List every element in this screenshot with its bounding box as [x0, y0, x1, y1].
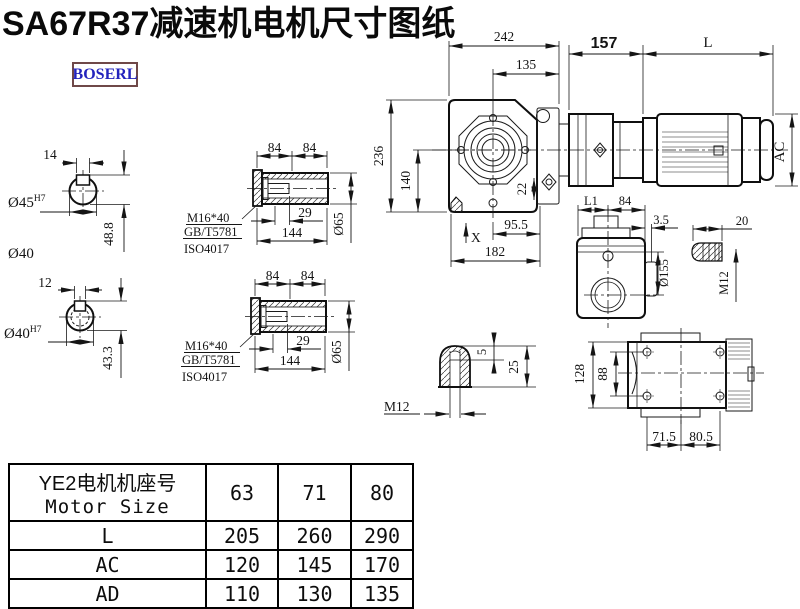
dim-text-29: 29 — [296, 333, 310, 348]
motor-flange-top-view — [726, 339, 754, 411]
table-cell: 110 — [206, 579, 278, 608]
dim-text-5: 5 — [475, 349, 489, 355]
dim-keyway-height-bottom: 43.3 — [86, 278, 127, 378]
dim-135: 135 — [493, 57, 559, 112]
gearbox-face-details — [451, 110, 556, 219]
dim-text-88: 88 — [595, 367, 610, 381]
dim-text-dia155: Ø155 — [657, 259, 671, 287]
dim-text-3-5: 3.5 — [653, 213, 669, 227]
dim-text-84a: 84 — [268, 140, 282, 155]
oil-plug — [537, 110, 550, 123]
solid-shaft-section-bottom: 12 Ø40H7 43.3 — [4, 275, 127, 378]
table-header-en: Motor Size — [11, 496, 204, 518]
dim-text-bore45: Ø45H7 — [8, 194, 46, 211]
solid-shaft-section-top: 14 Ø45H7 48.8 Ø40 — [8, 147, 130, 262]
table-cell: 145 — [278, 550, 351, 579]
dim-22: 22 — [515, 178, 534, 200]
dim-text-43-3: 43.3 — [100, 346, 115, 370]
dim-L1-84: L1 84 — [578, 194, 645, 260]
dim-text-135: 135 — [516, 57, 537, 72]
table-size-71: 71 — [278, 464, 351, 521]
dim-L: L — [643, 35, 773, 116]
main-assembly-view: 242 135 157 L 2 — [371, 29, 798, 267]
table-row-label-AD: AD — [9, 579, 206, 608]
table-cell: 130 — [278, 579, 351, 608]
table-row-label-AC: AC — [9, 550, 206, 579]
drawing-sheet: SA67R37减速机电机尺寸图纸 BOSERL — [0, 0, 800, 609]
table-header-cn: YE2电机机座号 — [11, 467, 204, 496]
dim-keyway-width-top: 14 — [43, 147, 104, 173]
dim-text-14: 14 — [43, 147, 57, 162]
table-cell: 135 — [351, 579, 413, 608]
dim-text-236: 236 — [371, 146, 386, 167]
dim-text-x: X — [471, 230, 481, 245]
dim-text-20: 20 — [736, 214, 749, 228]
table-cell: 260 — [278, 521, 351, 550]
dim-text-182: 182 — [485, 244, 505, 259]
side-view: L1 84 3.5 Ø155 — [577, 194, 752, 328]
dim-text-od40: Ø40 — [8, 246, 34, 262]
label-standard-gb: GB/T5781 — [182, 353, 235, 367]
label-bolt-spec: M16*40 — [187, 211, 229, 225]
dim-text-84: 84 — [619, 194, 632, 208]
dim-157: 157 — [569, 35, 643, 114]
table-cell: 290 — [351, 521, 413, 550]
bolt-holes — [640, 345, 727, 403]
dim-text-M12: M12 — [384, 399, 410, 414]
dim-dia155: Ø155 — [646, 252, 671, 295]
dim-text-48-8: 48.8 — [101, 222, 116, 246]
dim-text-AC: AC — [772, 142, 788, 163]
foot-gusset — [451, 197, 462, 212]
dim-text-dia65: Ø65 — [329, 340, 344, 363]
motor-fins — [662, 132, 728, 172]
dim-text-84a: 84 — [266, 268, 280, 283]
dim-text-242: 242 — [494, 29, 514, 44]
dim-text-144: 144 — [280, 353, 301, 368]
dim-text-84b: 84 — [301, 268, 315, 283]
dim-text-22: 22 — [515, 183, 529, 196]
dim-text-M12: M12 — [717, 271, 731, 295]
table-row-AD: AD 110 130 135 — [9, 579, 413, 608]
dim-text-80-5: 80.5 — [689, 429, 713, 444]
flange-bolt — [542, 174, 556, 190]
dim-text-dia65: Ø65 — [331, 212, 346, 235]
dim-text-L1: L1 — [584, 194, 598, 208]
table-cell: 205 — [206, 521, 278, 550]
dim-text-157: 157 — [591, 35, 618, 52]
label-standard-iso: ISO4017 — [182, 370, 227, 384]
table-size-63: 63 — [206, 464, 278, 521]
hollow-shaft-view-bottom: 84 84 29 144 Ø65 M16*40 GB/T5781 ISO4017 — [181, 268, 355, 384]
table-row-label-L: L — [9, 521, 206, 550]
hollow-shaft-view-top: 84 84 29 144 Ø65 M16*40 GB/T5781 ISO4017 — [183, 140, 357, 256]
table-row-AC: AC 120 145 170 — [9, 550, 413, 579]
label-standard-iso: ISO4017 — [184, 242, 229, 256]
label-bolt-spec: M16*40 — [185, 339, 227, 353]
table-cell: 170 — [351, 550, 413, 579]
dim-242: 242 — [449, 29, 559, 104]
table-size-80: 80 — [351, 464, 413, 521]
dim-keyway-height-top: 48.8 — [90, 150, 130, 252]
dim-text-bore40: Ø40H7 — [4, 325, 42, 342]
dim-text-71-5: 71.5 — [652, 429, 676, 444]
marker-x: X — [466, 223, 481, 245]
motor-size-table: YE2电机机座号 Motor Size 63 71 80 L 205 260 2… — [8, 463, 414, 609]
dim-keyway-width-bottom: 12 — [38, 275, 102, 299]
dim-236: 236 — [371, 100, 447, 212]
dim-text-84b: 84 — [303, 140, 317, 155]
table-header-motor-size: YE2电机机座号 Motor Size — [9, 464, 206, 521]
dim-text-12: 12 — [38, 275, 52, 290]
shaft-end-detail — [692, 243, 722, 261]
label-M12-plug: M12 — [384, 399, 486, 414]
dim-text-128: 128 — [572, 364, 587, 385]
dim-AC: AC — [772, 114, 798, 186]
dim-text-25: 25 — [506, 360, 521, 374]
top-view: 128 88 71.5 80.5 — [572, 328, 764, 451]
dim-text-95-5: 95.5 — [504, 217, 528, 232]
dim-text-L: L — [703, 35, 712, 51]
dim-text-29: 29 — [298, 205, 312, 220]
plug-detail: M12 5 25 — [384, 334, 536, 418]
dim-text-140: 140 — [398, 171, 413, 192]
dim-20: 20 — [693, 214, 752, 241]
table-cell: 120 — [206, 550, 278, 579]
label-standard-gb: GB/T5781 — [184, 225, 237, 239]
table-row-L: L 205 260 290 — [9, 521, 413, 550]
dim-text-144: 144 — [282, 225, 303, 240]
dim-88: 88 — [595, 352, 643, 396]
